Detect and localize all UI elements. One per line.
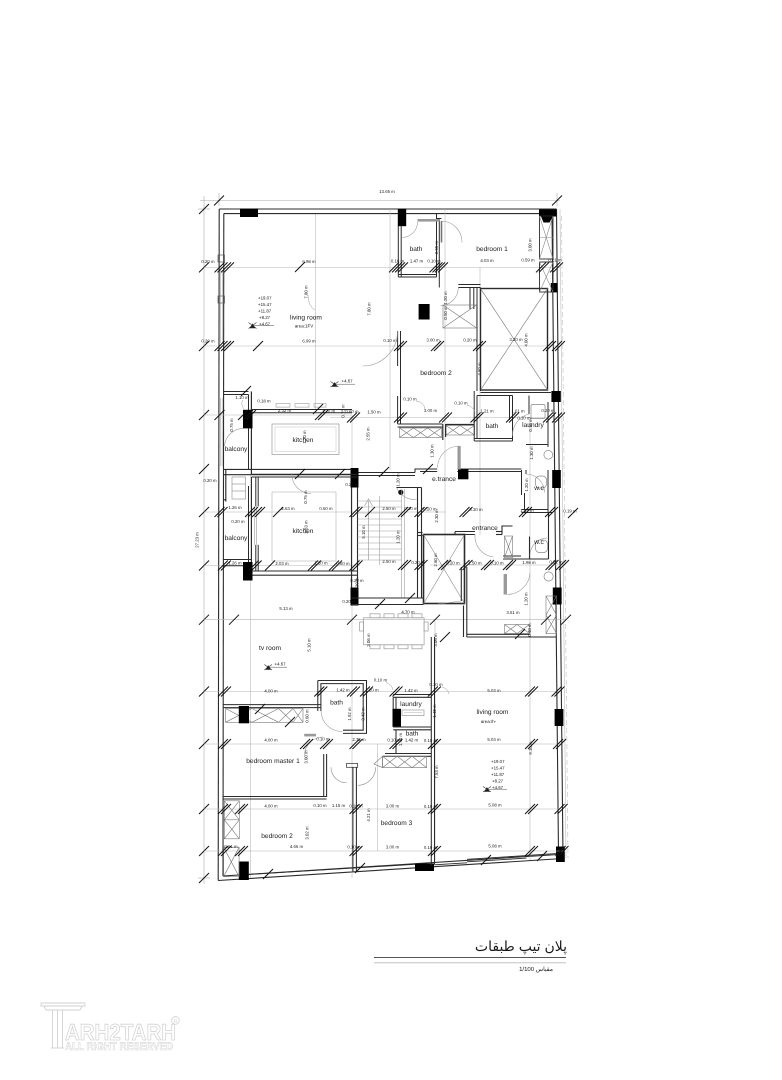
svg-text:1.20 m: 1.20 m [443, 291, 448, 305]
svg-text:bedroom 3: bedroom 3 [381, 820, 413, 827]
svg-text:1.20 m: 1.20 m [396, 473, 401, 487]
svg-text:0.20 m: 0.20 m [541, 408, 555, 413]
svg-text:+19.07: +19.07 [491, 759, 505, 764]
svg-text:0.21 m: 0.21 m [548, 258, 562, 263]
svg-text:balcony: balcony [225, 535, 248, 542]
svg-text:1.42 m: 1.42 m [405, 738, 419, 743]
svg-text:3.06 m: 3.06 m [433, 633, 438, 647]
svg-text:R: R [174, 1019, 178, 1025]
svg-text:5.10 m: 5.10 m [307, 638, 312, 652]
svg-text:living room: living room [290, 315, 322, 322]
svg-text:1.20 m: 1.20 m [524, 478, 529, 492]
svg-text:4.00 m: 4.00 m [524, 333, 529, 347]
svg-text:0.20 m: 0.20 m [201, 259, 215, 264]
svg-text:1.20 m: 1.20 m [302, 430, 307, 444]
svg-text:0.50 m: 0.50 m [443, 306, 448, 320]
svg-text:4.00 m: 4.00 m [264, 738, 278, 743]
svg-text:7.80 m: 7.80 m [367, 302, 372, 316]
svg-text:3.00 m: 3.00 m [304, 750, 309, 764]
svg-text:1.30 m: 1.30 m [430, 444, 435, 458]
svg-text:27.23 m: 27.23 m [195, 532, 200, 548]
svg-text:1.15 m: 1.15 m [332, 803, 346, 808]
svg-text:0.60 m: 0.60 m [319, 506, 333, 511]
svg-text:0.10 m: 0.10 m [383, 338, 397, 343]
svg-text:7.53 m: 7.53 m [434, 765, 439, 779]
svg-text:area:/h-: area:/h- [481, 719, 497, 724]
svg-text:0.10 m: 0.10 m [429, 682, 443, 687]
svg-text:+11.87: +11.87 [491, 772, 505, 777]
svg-text:2.55 m: 2.55 m [366, 427, 371, 441]
svg-text:4.00 m: 4.00 m [264, 804, 278, 809]
svg-text:1.20 m: 1.20 m [355, 577, 360, 591]
svg-text:1.21 m: 1.21 m [480, 409, 494, 414]
svg-text:1.92 m: 1.92 m [347, 707, 352, 721]
svg-text:4.21 m: 4.21 m [366, 808, 371, 822]
svg-text:1.98 m: 1.98 m [522, 560, 536, 565]
svg-text:3.06 m: 3.06 m [366, 633, 371, 647]
svg-text:1.10 m: 1.10 m [235, 395, 249, 400]
svg-text:0.10 m: 0.10 m [374, 678, 388, 683]
svg-text:bath: bath [486, 423, 499, 430]
svg-text:2.63 m: 2.63 m [281, 506, 295, 511]
svg-text:4.70 m: 4.70 m [401, 610, 415, 615]
svg-text:1.42 m: 1.42 m [404, 688, 418, 693]
svg-text:bedroom 2: bedroom 2 [261, 833, 293, 840]
svg-text:4.66 m: 4.66 m [290, 844, 304, 849]
svg-text:+8.27: +8.27 [492, 779, 504, 784]
svg-text:0.75 m: 0.75 m [341, 404, 346, 418]
svg-text:پلان تیپ طبقات: پلان تیپ طبقات [475, 938, 567, 955]
svg-text:bath: bath [406, 731, 419, 738]
svg-text:bedroom 2: bedroom 2 [420, 370, 452, 377]
svg-text:0.10 m: 0.10 m [424, 845, 438, 850]
svg-text:tv room: tv room [259, 645, 281, 652]
svg-text:0.60 m: 0.60 m [305, 709, 310, 723]
svg-text:6.99 m: 6.99 m [302, 339, 316, 344]
svg-text:ALL RIGHT RESERVED: ALL RIGHT RESERVED [65, 1041, 173, 1053]
svg-text:laundry: laundry [522, 422, 544, 429]
svg-text:0.75 m: 0.75 m [303, 490, 308, 504]
svg-text:5.03 m: 5.03 m [487, 737, 501, 742]
svg-text:2.03 m: 2.03 m [275, 561, 289, 566]
svg-text:1.50 m: 1.50 m [468, 561, 482, 566]
svg-text:13.65 m: 13.65 m [379, 189, 395, 194]
svg-text:+15.47: +15.47 [491, 766, 505, 771]
svg-text:5.13 m: 5.13 m [279, 606, 293, 611]
svg-text:area:1FV: area:1FV [295, 324, 314, 329]
svg-text:3.00 m: 3.00 m [528, 238, 533, 252]
svg-text:3.42 m: 3.42 m [361, 707, 366, 721]
svg-text:0.10 m: 0.10 m [391, 259, 405, 264]
svg-text:+4.67: +4.67 [259, 322, 271, 327]
svg-text:4.03 m: 4.03 m [480, 258, 494, 263]
svg-text:0.10 m: 0.10 m [454, 401, 468, 406]
svg-text:1.20 m: 1.20 m [396, 530, 401, 544]
svg-text:3.61 m: 3.61 m [506, 610, 520, 615]
svg-text:2.50 m: 2.50 m [382, 506, 396, 511]
svg-text:0.20 m: 0.20 m [463, 338, 477, 343]
svg-text:2.32 m: 2.32 m [278, 408, 292, 413]
svg-text:6.98 m: 6.98 m [302, 259, 316, 264]
svg-text:+4.67: +4.67 [275, 662, 287, 667]
svg-text:2.30 m: 2.30 m [434, 509, 439, 523]
svg-text:+8.27: +8.27 [259, 315, 271, 320]
svg-text:1.20 m: 1.20 m [524, 592, 529, 606]
svg-text:1.26 m: 1.26 m [228, 505, 242, 510]
svg-text:0.10 m: 0.10 m [403, 397, 417, 402]
svg-text:e.trance: e.trance [432, 476, 456, 483]
svg-text:w.c: w.c [533, 485, 544, 492]
svg-text:bedroom master 1: bedroom master 1 [246, 758, 300, 765]
svg-text:laundry: laundry [400, 701, 422, 708]
svg-text:0.20 m: 0.20 m [345, 482, 359, 487]
svg-text:0.10 m: 0.10 m [424, 738, 438, 743]
svg-text:1.50 m: 1.50 m [367, 410, 381, 415]
svg-text:+4.67: +4.67 [342, 379, 354, 384]
svg-text:3.00 m: 3.00 m [426, 338, 440, 343]
svg-text:1.40 m: 1.40 m [432, 704, 437, 718]
svg-text:3.02 m: 3.02 m [305, 826, 310, 840]
svg-text:5.10 m: 5.10 m [361, 525, 366, 539]
svg-text:+15.47: +15.47 [258, 302, 272, 307]
svg-text:2.50 m: 2.50 m [382, 559, 396, 564]
svg-text:3.20 m: 3.20 m [509, 337, 523, 342]
svg-text:1.42 m: 1.42 m [336, 688, 350, 693]
svg-text:0.20 m: 0.20 m [231, 519, 245, 524]
svg-text:0.61 m: 0.61 m [224, 844, 238, 849]
svg-text:entrance: entrance [472, 525, 498, 532]
svg-text:5.08 m: 5.08 m [488, 844, 502, 849]
svg-text:4.00 m: 4.00 m [264, 689, 278, 694]
svg-text:0.20 m: 0.20 m [201, 339, 215, 344]
svg-text:3.00 m: 3.00 m [386, 845, 400, 850]
svg-text:0.20 m: 0.20 m [203, 478, 217, 483]
svg-text:2.60 m: 2.60 m [433, 553, 438, 567]
svg-text:3.00 m: 3.00 m [386, 804, 400, 809]
svg-text:0.18 m: 0.18 m [257, 399, 271, 404]
svg-text:+11.87: +11.87 [258, 309, 272, 314]
svg-text:0.40 m: 0.40 m [527, 623, 532, 637]
svg-text:5.08 m: 5.08 m [488, 803, 502, 808]
svg-text:0.10 m: 0.10 m [313, 803, 327, 808]
svg-text:1.30 m: 1.30 m [529, 446, 534, 460]
svg-text:مقیاس 1/100: مقیاس 1/100 [519, 966, 553, 973]
svg-text:0.59 m: 0.59 m [521, 258, 535, 263]
svg-text:bath: bath [330, 700, 343, 707]
svg-text:living room: living room [477, 709, 509, 716]
svg-text:2.55 m: 2.55 m [434, 241, 439, 255]
svg-text:5.03 m: 5.03 m [487, 688, 501, 693]
svg-text:7.80 m: 7.80 m [304, 285, 309, 299]
svg-text:0.10 m: 0.10 m [528, 418, 533, 432]
svg-text:0.20 m: 0.20 m [342, 599, 356, 604]
svg-text:bedroom 1: bedroom 1 [476, 246, 508, 253]
svg-text:bath: bath [410, 246, 423, 253]
svg-text:0.75 m: 0.75 m [229, 418, 234, 432]
svg-text:1.47 m: 1.47 m [410, 259, 424, 264]
svg-text:w.c: w.c [533, 539, 544, 546]
svg-text:2.63 m: 2.63 m [304, 520, 309, 534]
svg-text:balcony: balcony [225, 446, 248, 453]
svg-text:3.00 m: 3.00 m [424, 408, 438, 413]
svg-text:4.60 m: 4.60 m [477, 362, 482, 376]
svg-text:+19.07: +19.07 [258, 296, 272, 301]
